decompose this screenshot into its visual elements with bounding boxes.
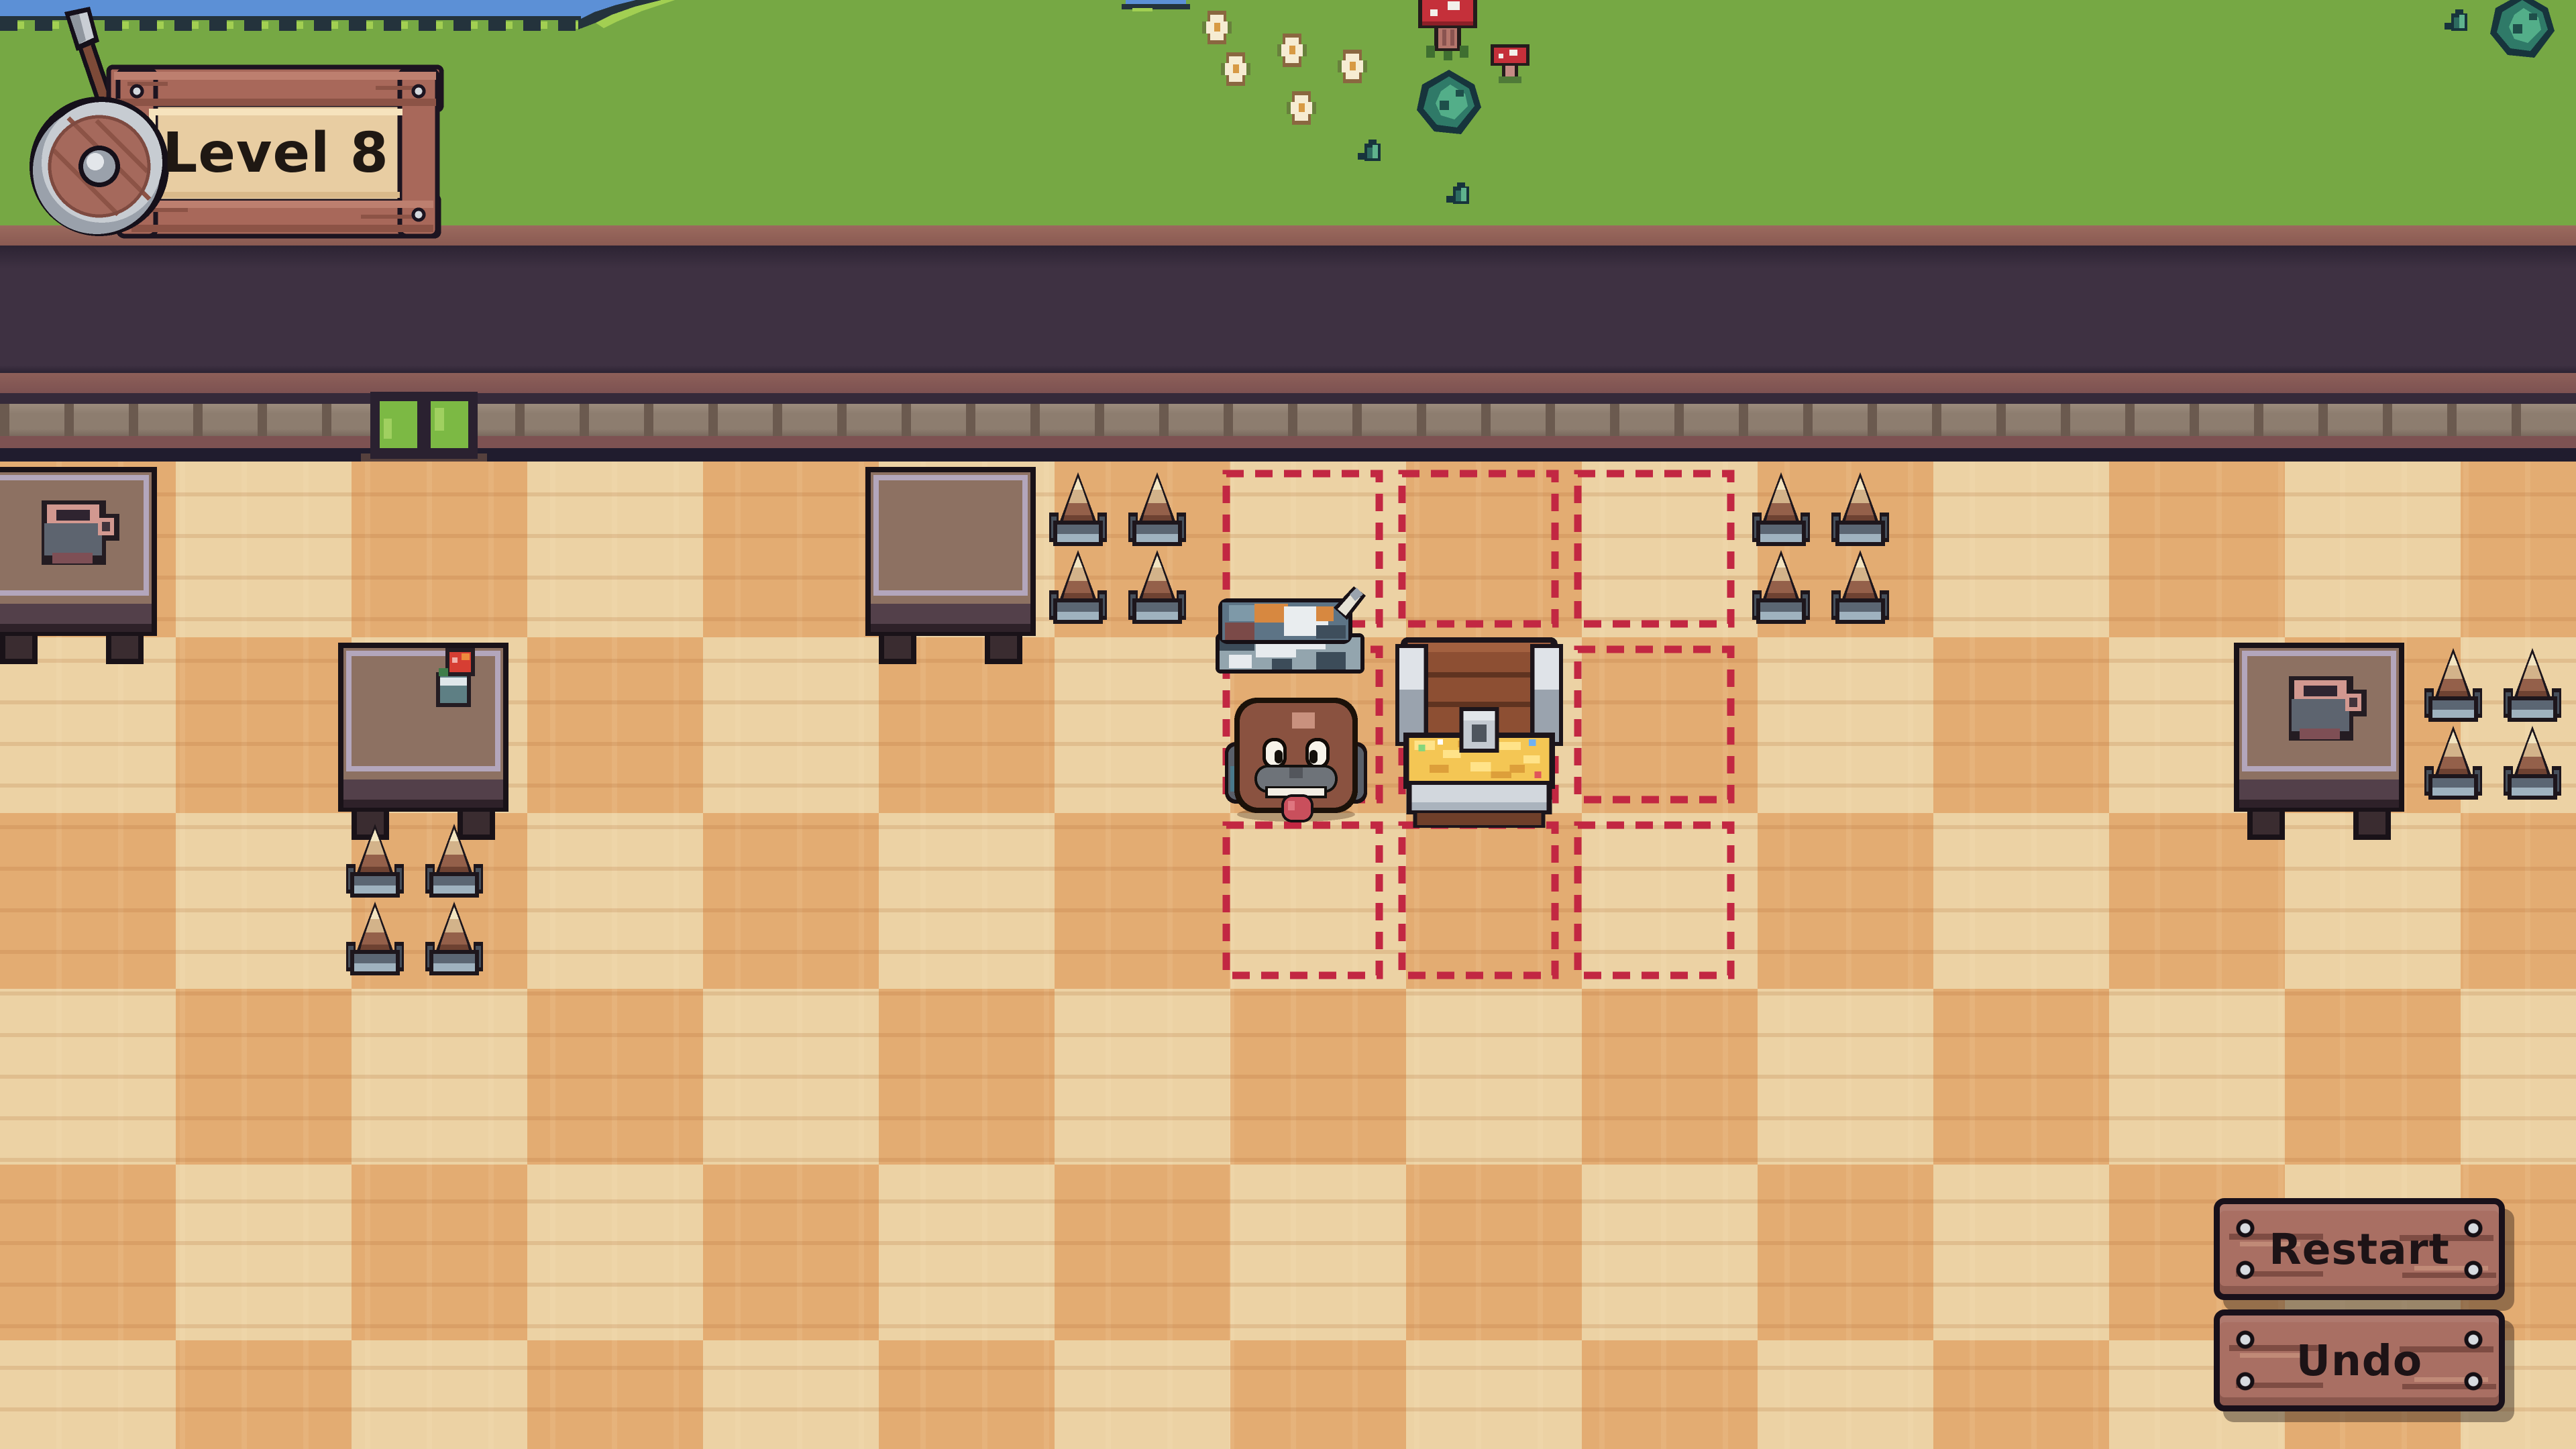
floor-tile [1055,813,1230,989]
floor-tile [2461,813,2576,989]
floor-tile [703,637,879,813]
floor-tile [527,462,703,637]
floor-tile [176,1340,352,1449]
floor-tile [1758,462,1933,637]
floor-tile [0,989,176,1165]
floor-tile [1230,1340,1406,1449]
floor-tile [1582,462,1758,637]
floor-tile [1582,1165,1758,1340]
floor-tile [1582,813,1758,989]
floor-tile [2109,637,2285,813]
floor-tile [1230,813,1406,989]
floor-tile [1055,462,1230,637]
floor-tile [2109,813,2285,989]
floor-tile [1933,462,2109,637]
floor-tile [1933,1340,2109,1449]
floor-tile [176,637,352,813]
floor-tile [2109,989,2285,1165]
floor-tile [0,1165,176,1340]
floor-tile [703,813,879,989]
floor-tile [879,462,1055,637]
floor-tile [1406,1340,1582,1449]
floor-tile [879,813,1055,989]
floor-tile [2285,637,2461,813]
floor-tile [879,989,1055,1165]
floor-tile [527,1165,703,1340]
floor-tile [2461,989,2576,1165]
floor-tile [2461,462,2576,637]
building-wall-beam [0,373,2576,393]
floor-tile [176,1165,352,1340]
floor-tile [1055,989,1230,1165]
floor-tile [2461,637,2576,813]
floor-tile [527,989,703,1165]
checkered-floor [0,462,2576,1449]
floor-tile [1055,1340,1230,1449]
floor-tile [1933,637,2109,813]
undo-button-label: Undo [2296,1336,2422,1385]
floor-tile [1230,1165,1406,1340]
floor-tile [879,637,1055,813]
floor-tile [879,1340,1055,1449]
floor-tile [1406,637,1582,813]
floor-tile [0,1340,176,1449]
floor-tile [703,1165,879,1340]
floor-tile [2285,813,2461,989]
water-pool-remnant [1122,0,1190,11]
floor-tile [1582,637,1758,813]
floor-tile [527,813,703,989]
floor-tile [1582,989,1758,1165]
floor-tile [1933,989,2109,1165]
floor-tile [1406,462,1582,637]
floor-tile [352,813,527,989]
floor-tile [703,1340,879,1449]
floor-tile [1758,637,1933,813]
floor-tile [1758,989,1933,1165]
floor-tile [176,813,352,989]
floor-tile [1933,1165,2109,1340]
floor-tile [1758,813,1933,989]
floor-tile [1055,1165,1230,1340]
floor-tile [1406,989,1582,1165]
undo-button[interactable]: Undo [2214,1309,2505,1411]
level-label: Level 8 [145,114,407,192]
restart-button-label: Restart [2269,1225,2450,1274]
floor-tile [2109,462,2285,637]
floor-tile [176,462,352,637]
floor-tile [352,1340,527,1449]
floor-tile [1406,813,1582,989]
floor-tile [1758,1165,1933,1340]
floor-tile [1933,813,2109,989]
floor-tile [1230,462,1406,637]
floor-tile [527,637,703,813]
floor-tile [1406,1165,1582,1340]
floor-tile [1230,637,1406,813]
floor-tile [1230,989,1406,1165]
floor-tile [352,1165,527,1340]
floor-tile [1758,1340,1933,1449]
floor-tile [0,462,176,637]
floor-tile [527,1340,703,1449]
floor-tile [2285,989,2461,1165]
restart-button[interactable]: Restart [2214,1198,2505,1300]
floor-tile [176,989,352,1165]
floor-tile [703,989,879,1165]
floor-tile [703,462,879,637]
floor-tile [352,637,527,813]
building-roof [0,246,2576,373]
level-sign: Level 8 [27,5,483,260]
floor-tile [879,1165,1055,1340]
floor-tile [0,813,176,989]
floor-tile [352,462,527,637]
floor-tile [1055,637,1230,813]
floor-tile [2285,462,2461,637]
floor-tile [1582,1340,1758,1449]
floor-tile [0,637,176,813]
floor-tile [352,989,527,1165]
game-viewport: Level 8 Restart Undo [0,0,2576,1449]
